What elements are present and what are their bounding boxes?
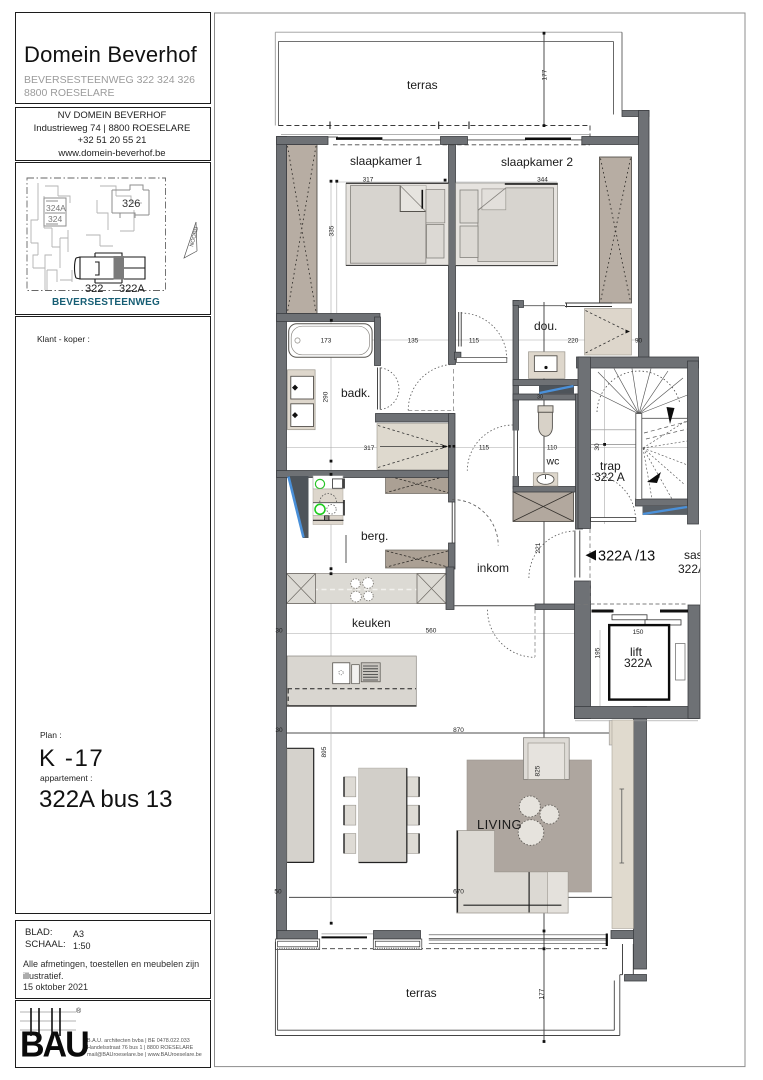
svg-text:322A /13: 322A /13 (598, 549, 655, 565)
svg-text:324: 324 (48, 214, 62, 224)
svg-text:NOORD: NOORD (189, 226, 200, 247)
svg-text:322A: 322A (119, 283, 145, 295)
svg-text:290: 290 (323, 391, 330, 402)
svg-text:322: 322 (85, 283, 103, 295)
svg-text:221: 221 (535, 542, 542, 553)
svg-text:317: 317 (364, 445, 375, 452)
svg-text:344: 344 (537, 177, 548, 184)
svg-text:50: 50 (274, 889, 282, 896)
svg-text:322 A: 322 A (594, 470, 625, 484)
svg-text:115: 115 (479, 445, 490, 452)
svg-text:870: 870 (453, 727, 464, 734)
svg-text:326: 326 (122, 198, 140, 210)
svg-text:LIVING: LIVING (477, 817, 522, 832)
svg-text:150: 150 (633, 629, 644, 636)
svg-text:slaapkamer 1: slaapkamer 1 (350, 154, 422, 168)
svg-text:terras: terras (407, 78, 438, 92)
svg-text:195: 195 (595, 647, 602, 658)
svg-text:115: 115 (469, 338, 480, 345)
svg-text:inkom: inkom (477, 561, 509, 575)
svg-text:BEVERSESTEENWEG: BEVERSESTEENWEG (52, 297, 160, 308)
svg-text:30: 30 (594, 443, 601, 451)
svg-text:keuken: keuken (352, 616, 391, 630)
svg-text:324A: 324A (46, 203, 66, 213)
svg-text:sas: sas (684, 548, 703, 562)
svg-text:895: 895 (321, 746, 328, 757)
svg-text:177: 177 (539, 988, 546, 999)
svg-text:220: 220 (568, 338, 579, 345)
svg-text:322A: 322A (678, 562, 706, 576)
svg-text:dou.: dou. (534, 319, 557, 333)
svg-text:317: 317 (363, 177, 374, 184)
svg-text:wc: wc (546, 456, 560, 468)
svg-text:badk.: badk. (341, 386, 370, 400)
svg-text:670: 670 (453, 889, 464, 896)
svg-text:90: 90 (635, 338, 643, 345)
svg-text:30: 30 (537, 395, 543, 401)
svg-text:slaapkamer 2: slaapkamer 2 (501, 155, 573, 169)
svg-text:30: 30 (275, 628, 283, 635)
svg-text:825: 825 (535, 765, 542, 776)
svg-text:110: 110 (547, 445, 558, 452)
svg-text:berg.: berg. (361, 529, 388, 543)
svg-text:322A: 322A (624, 656, 652, 670)
svg-text:335: 335 (329, 225, 336, 236)
svg-text:30: 30 (275, 727, 283, 734)
svg-text:173: 173 (321, 338, 332, 345)
svg-text:terras: terras (406, 986, 437, 1000)
svg-text:135: 135 (408, 338, 419, 345)
svg-text:560: 560 (426, 628, 437, 635)
svg-text:177: 177 (542, 69, 549, 80)
